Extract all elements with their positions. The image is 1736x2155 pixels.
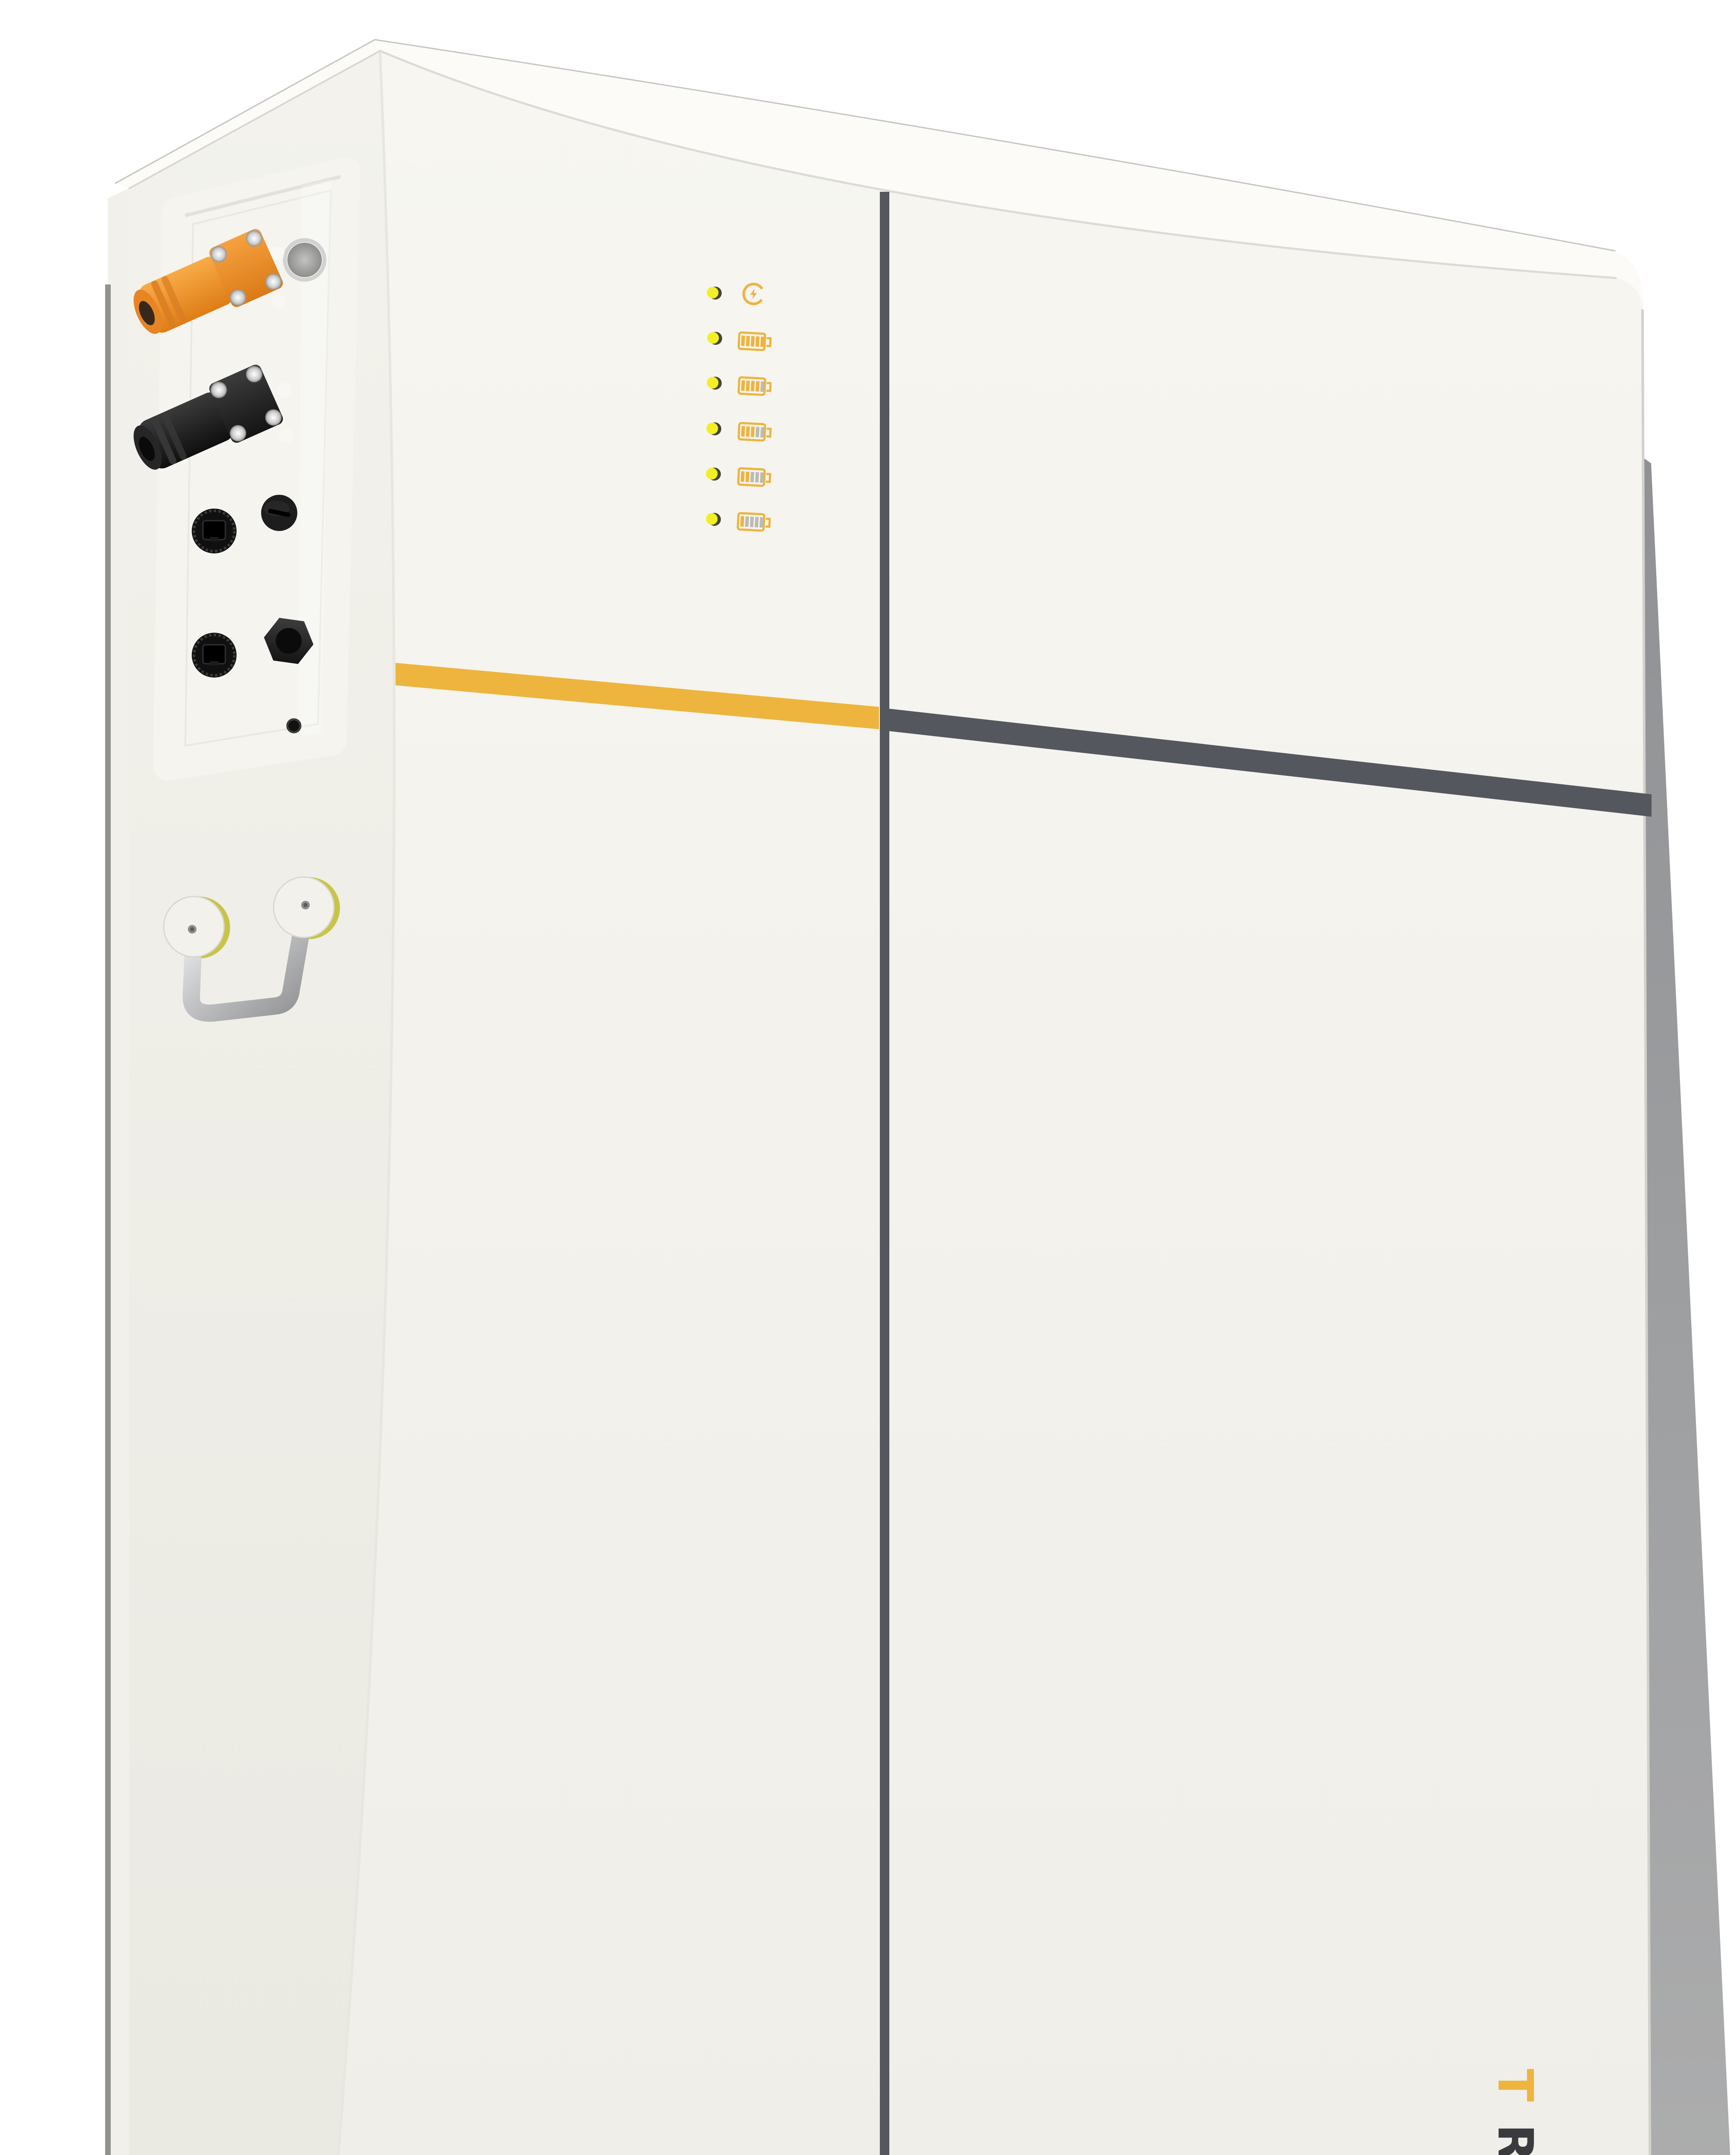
status-led: [706, 513, 718, 525]
status-led: [707, 332, 719, 344]
battery-unit-render: TRIPLE POWER: [0, 0, 1736, 2155]
ethernet-port-lower[interactable]: [192, 633, 237, 678]
front-divider: [880, 192, 889, 2155]
logo-letters-riple: RIPLE: [1487, 2124, 1543, 2155]
ethernet-port-upper[interactable]: [192, 509, 237, 553]
slot-cap[interactable]: [261, 495, 297, 531]
logo-letter-t: T: [1487, 2069, 1543, 2124]
front-face: [299, 51, 1652, 2155]
back-left-edge: [108, 188, 130, 2155]
back-left-edge-line: [105, 284, 111, 2155]
status-led: [707, 287, 719, 299]
status-led: [707, 423, 718, 434]
metal-button[interactable]: [285, 240, 324, 280]
handle-mount-screw-center: [190, 927, 194, 931]
logo-triple-text: TRIPLE: [1487, 2069, 1543, 2155]
handle-mount-screw-center: [303, 903, 308, 907]
status-led: [707, 377, 719, 389]
reflection-blob: [279, 429, 293, 443]
reflection-blob: [272, 294, 287, 309]
product-render-stage: TRIPLE POWER: [0, 0, 1736, 2155]
status-led: [706, 468, 718, 480]
reflection-blob: [277, 383, 292, 397]
vent-hole: [287, 719, 300, 732]
